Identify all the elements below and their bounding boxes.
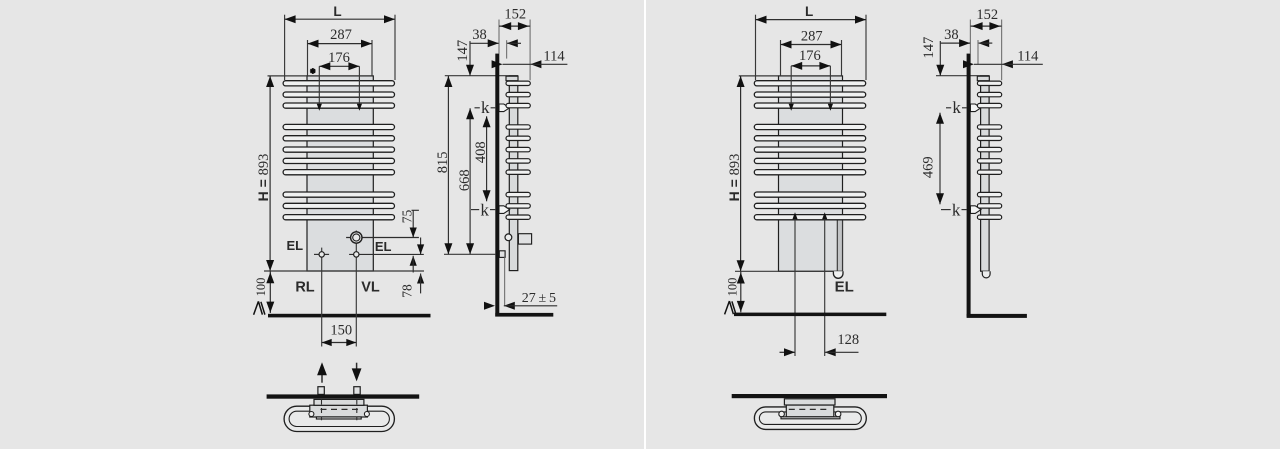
svg-text:150: 150 [330,323,352,339]
svg-text:128: 128 [837,332,859,348]
svg-text:H = 893: H = 893 [726,154,743,202]
svg-text:152: 152 [504,6,526,22]
svg-text:176: 176 [328,50,350,66]
svg-text:469: 469 [920,156,936,178]
svg-text:EL: EL [375,239,392,254]
svg-text:L: L [805,4,813,19]
svg-text:815: 815 [435,152,451,174]
svg-text:100: 100 [726,278,740,297]
svg-text:287: 287 [801,29,823,45]
svg-text:k: k [952,98,961,117]
svg-text:27 ± 5: 27 ± 5 [522,291,556,306]
svg-text:668: 668 [457,169,473,191]
svg-text:L: L [333,4,341,19]
svg-text:H = 893: H = 893 [255,154,272,202]
svg-text:EL: EL [286,238,303,253]
svg-text:114: 114 [1017,49,1039,65]
svg-text:EL: EL [835,278,854,295]
svg-text:100: 100 [254,278,268,297]
svg-text:k: k [952,200,961,219]
svg-text:147: 147 [921,37,937,59]
svg-text:38: 38 [944,27,959,43]
svg-text:VL: VL [361,279,380,295]
svg-text:38: 38 [472,27,487,43]
svg-text:147: 147 [455,40,471,62]
svg-text:287: 287 [330,27,352,43]
svg-text:RL: RL [295,279,314,295]
svg-text:78: 78 [400,284,415,298]
svg-text:114: 114 [543,48,565,64]
svg-text:176: 176 [799,48,821,64]
svg-text:k: k [480,200,489,219]
svg-text:75: 75 [400,210,415,224]
svg-text:k: k [481,98,490,117]
svg-text:408: 408 [473,141,489,163]
svg-text:152: 152 [976,7,998,23]
